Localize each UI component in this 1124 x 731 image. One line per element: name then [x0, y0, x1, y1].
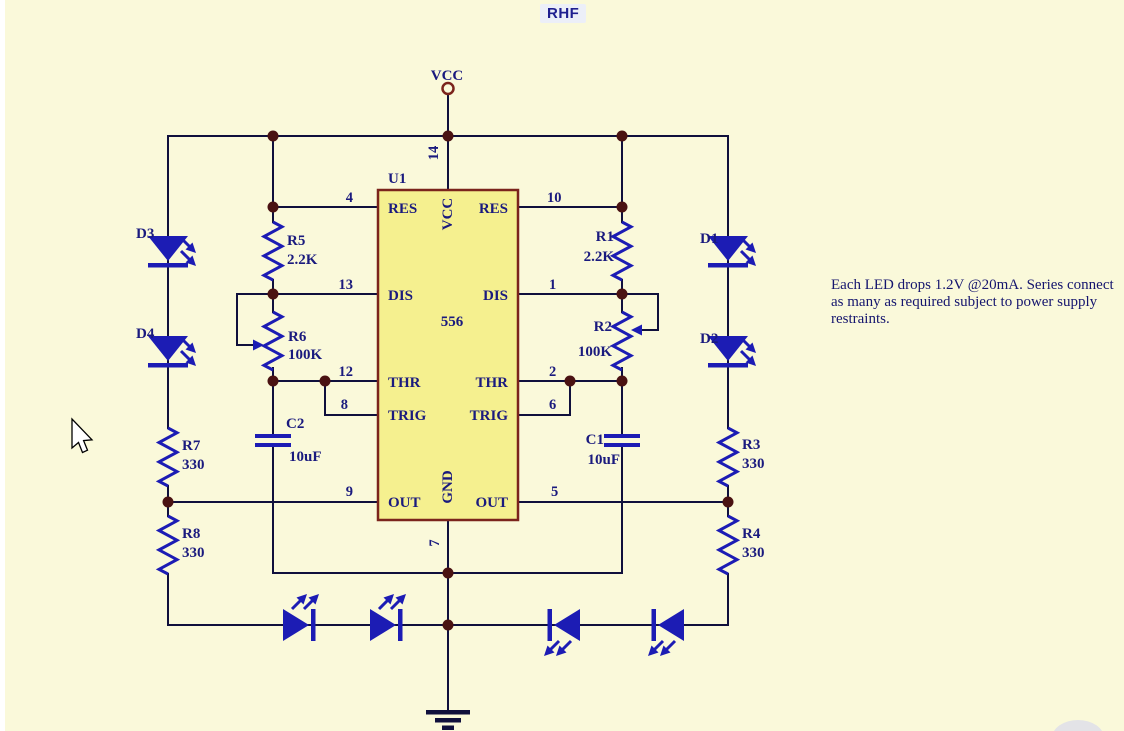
pin-name: DIS — [388, 288, 413, 304]
pot-wiper-arrow-icon — [253, 340, 264, 351]
schematic-canvas: VCC U1 556 RES DIS THR TRIG OUT RES DIS … — [0, 0, 1124, 731]
component-value: 2.2K — [584, 249, 615, 265]
pin-name: DIS — [483, 288, 508, 304]
component-value: 100K — [288, 347, 323, 363]
component-value: 100K — [578, 344, 613, 360]
led-icon — [648, 609, 684, 656]
led-icon — [148, 336, 196, 368]
component-ref: D4 — [136, 326, 155, 342]
component-ref: C2 — [286, 416, 304, 432]
component-ref: R3 — [742, 437, 760, 453]
led-bottom-right-1 — [544, 609, 580, 656]
component-value: 330 — [742, 545, 765, 561]
pin-name: GND — [440, 470, 456, 504]
resistor-r8: R8 330 — [159, 516, 205, 574]
resistor-r4: R4 330 — [719, 516, 765, 574]
mouse-cursor — [72, 419, 92, 453]
component-value: 2.2K — [287, 252, 318, 268]
pin-name: THR — [388, 375, 421, 391]
pin-number: 8 — [341, 397, 348, 413]
component-value: 10uF — [289, 449, 322, 465]
component-ref: R2 — [594, 319, 612, 335]
pin-number: 10 — [547, 190, 562, 206]
led-bottom-right-2 — [648, 609, 684, 656]
component-ref: D2 — [700, 331, 718, 347]
resistor-r5: R5 2.2K — [264, 222, 318, 280]
pin-number: 1 — [549, 277, 556, 293]
capacitor-c1: C1 10uF — [586, 432, 640, 468]
component-ref: R5 — [287, 233, 305, 249]
capacitor-c2: C2 10uF — [255, 416, 322, 465]
pin-number: 6 — [549, 397, 556, 413]
component-ref: D3 — [136, 226, 154, 242]
led-icon — [544, 609, 580, 656]
led-bottom-left-1 — [283, 594, 319, 641]
pin-number: 12 — [339, 364, 354, 380]
vcc-label: VCC — [431, 68, 464, 84]
pin-number: 2 — [549, 364, 556, 380]
component-ref: C1 — [586, 432, 604, 448]
pin-number: 4 — [346, 190, 353, 206]
pin-number: 9 — [346, 484, 353, 500]
pot-wiper-arrow-icon — [631, 325, 642, 336]
pin-name: RES — [388, 201, 417, 217]
pin-name: TRIG — [470, 408, 509, 424]
pin-number: 5 — [551, 484, 558, 500]
pin-name: OUT — [475, 495, 508, 511]
vcc-pin-icon — [443, 83, 454, 94]
potentiometer-r2: R2 100K — [578, 294, 658, 370]
ic-u1: U1 556 RES DIS THR TRIG OUT RES DIS THR … — [339, 146, 562, 547]
component-value: 330 — [182, 545, 205, 561]
resistor-r1: R1 2.2K — [584, 222, 631, 280]
component-ref: D1 — [700, 231, 718, 247]
component-ref: R6 — [288, 329, 307, 345]
ground-icon — [426, 710, 470, 730]
component-ref: R4 — [742, 526, 761, 542]
ic-ref: U1 — [388, 171, 406, 187]
pin-name: RES — [479, 201, 508, 217]
ground-symbol — [426, 710, 470, 730]
capacitor-icon — [604, 434, 640, 447]
vcc-terminal: VCC — [431, 68, 464, 94]
ic-part-number: 556 — [441, 314, 464, 330]
potentiometer-r6: R6 100K — [237, 294, 323, 370]
pin-name: OUT — [388, 495, 421, 511]
capacitor-icon — [255, 434, 291, 447]
pin-name: VCC — [440, 198, 456, 231]
component-value: 330 — [742, 456, 765, 472]
component-ref: R1 — [596, 229, 614, 245]
component-ref: R7 — [182, 438, 201, 454]
pin-number: 13 — [339, 277, 354, 293]
component-value: 10uF — [587, 452, 620, 468]
led-icon — [148, 236, 196, 268]
led-icon — [283, 594, 319, 641]
led-icon — [370, 594, 406, 641]
pin-name: TRIG — [388, 408, 427, 424]
pin-name: THR — [475, 375, 508, 391]
corner-blob — [1052, 720, 1104, 731]
led-d4: D4 — [136, 326, 196, 368]
component-value: 330 — [182, 457, 205, 473]
resistor-r7: R7 330 — [159, 428, 205, 486]
led-bottom-left-2 — [370, 594, 406, 641]
led-d3: D3 — [136, 226, 196, 268]
pin-number: 14 — [426, 146, 442, 161]
resistor-r3: R3 330 — [719, 428, 765, 486]
pin-number: 7 — [427, 539, 443, 546]
component-ref: R8 — [182, 526, 200, 542]
